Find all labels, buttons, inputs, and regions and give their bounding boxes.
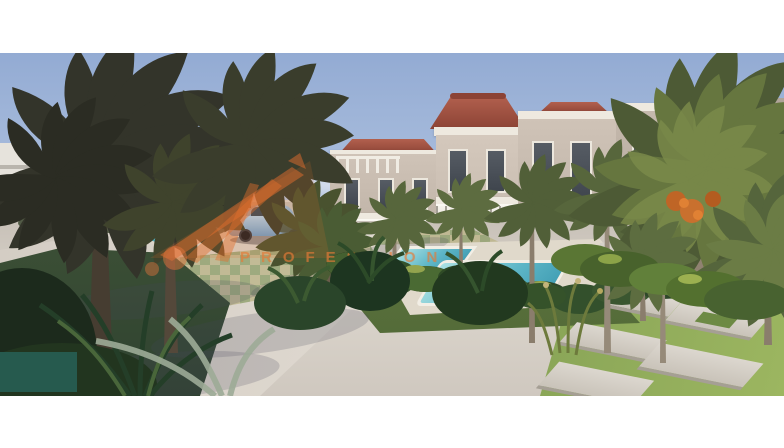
top-frame-band: [0, 0, 784, 53]
corner-color-swatch: [0, 352, 77, 392]
render-photo: PROFESSION: [0, 53, 784, 396]
foreground-vegetation: [0, 53, 784, 396]
center-front-shrub-2: [432, 251, 528, 325]
bottom-frame-band: [0, 396, 784, 448]
tall-grass-clump: [528, 278, 603, 355]
rendered-image-page: PROFESSION: [0, 0, 784, 448]
